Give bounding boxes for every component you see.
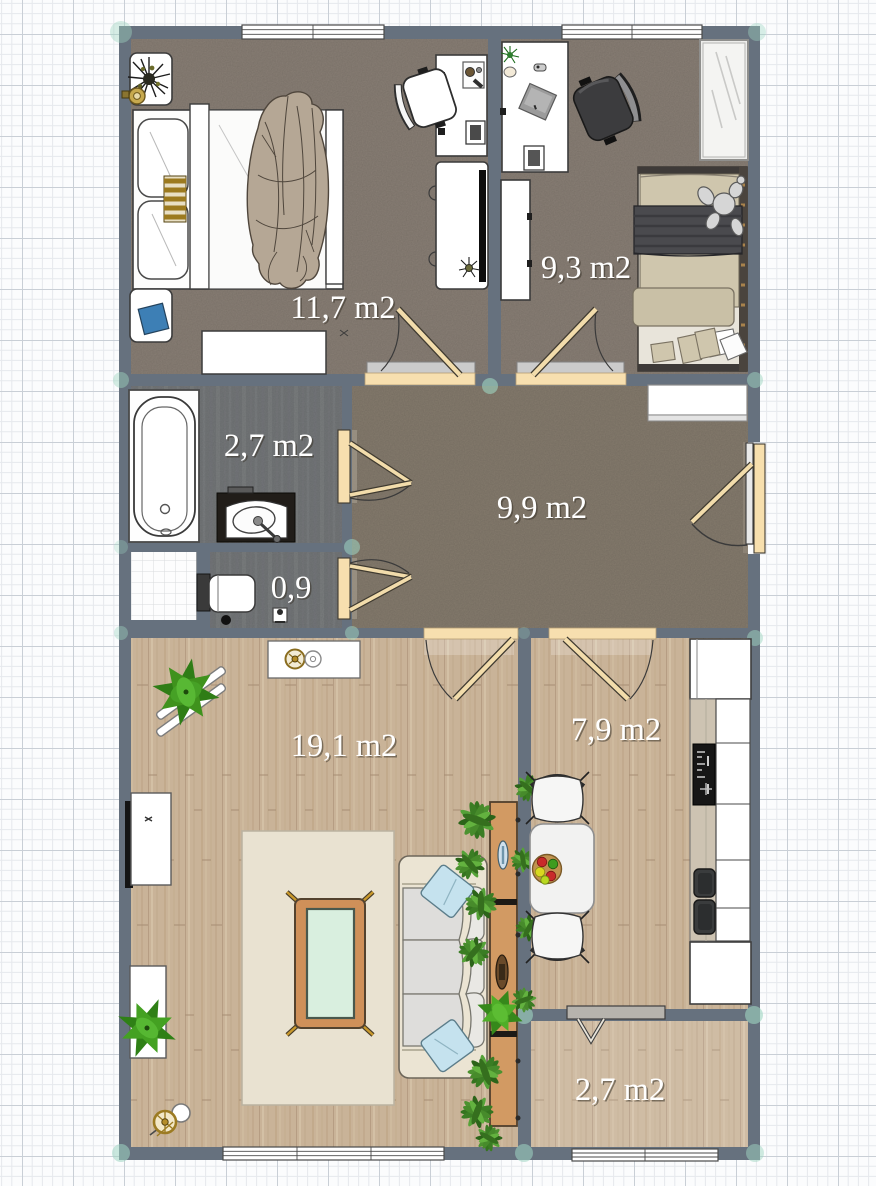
svg-text:9,9 m2: 9,9 m2 — [497, 490, 587, 526]
svg-text:0,9: 0,9 — [271, 570, 312, 606]
svg-text:7,9 m2: 7,9 m2 — [571, 712, 661, 748]
svg-text:2,7 m2: 2,7 m2 — [575, 1072, 665, 1108]
svg-text:11,7 m2: 11,7 m2 — [290, 290, 395, 326]
svg-text:9,3 m2: 9,3 m2 — [541, 250, 631, 286]
svg-text:2,7 m2: 2,7 m2 — [224, 428, 314, 464]
svg-text:19,1 m2: 19,1 m2 — [291, 728, 398, 764]
